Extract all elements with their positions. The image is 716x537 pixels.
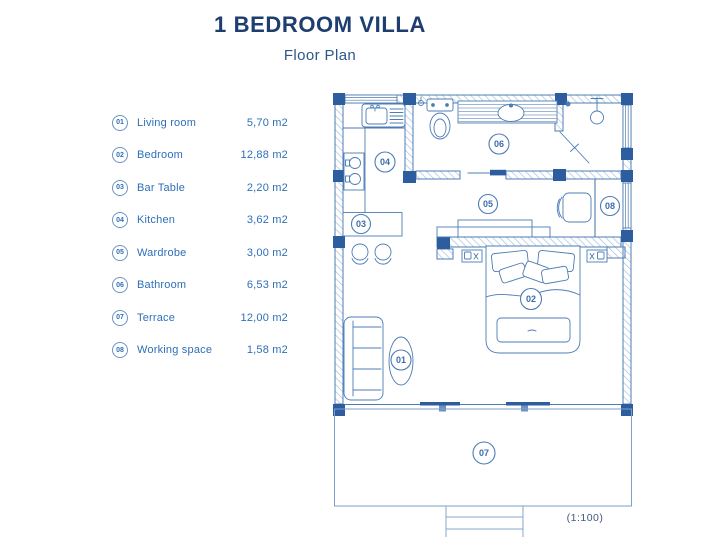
window-right-upper: [623, 105, 631, 148]
svg-text:08: 08: [605, 201, 615, 211]
svg-text:05: 05: [483, 199, 493, 209]
toilet-icon: [419, 97, 454, 139]
room-label-bedroom: 02: [521, 289, 542, 310]
svg-text:02: 02: [526, 294, 536, 304]
wardrobe: [437, 220, 550, 237]
svg-text:01: 01: [396, 355, 406, 365]
svg-text:03: 03: [356, 219, 366, 229]
stove-icon: [344, 153, 364, 190]
bathroom-sliding-door: [468, 170, 506, 176]
floor-plan-drawing: 01 02 03 04 05 06: [0, 0, 716, 537]
kitchen: [343, 104, 405, 264]
steps-icon: [446, 506, 523, 537]
room-label-working: 08: [601, 197, 620, 216]
room-label-bathroom: 06: [489, 134, 509, 154]
nightstand-icon: [462, 250, 482, 262]
room-label-bar: 03: [352, 215, 371, 234]
vanity-sink-icon: [458, 101, 557, 123]
room-label-terrace: 07: [473, 442, 495, 464]
nightstand-icon: [587, 250, 607, 262]
scale-note: (1:100): [567, 512, 604, 524]
wardrobe-unit: [458, 220, 532, 237]
room-label-kitchen: 04: [375, 152, 395, 172]
window-top: [345, 95, 397, 103]
kitchen-sink-icon: [362, 104, 405, 127]
wardrobe-unit: [437, 227, 550, 237]
working-space: [557, 179, 595, 237]
svg-text:06: 06: [494, 139, 504, 149]
room-label-wardrobe: 05: [479, 195, 498, 214]
bar-stool-icon: [352, 244, 391, 264]
sofa-icon: [344, 317, 383, 400]
svg-text:07: 07: [479, 448, 489, 458]
desk-chair-icon: [557, 193, 591, 222]
shower-icon: [560, 97, 604, 163]
sliding-glass-doors: [345, 402, 621, 412]
room-label-living: 01: [391, 350, 411, 370]
window-right-lower: [623, 183, 631, 228]
bathroom: [419, 97, 604, 163]
svg-text:04: 04: [380, 157, 390, 167]
floor-plan-page: 1 BEDROOM VILLA Floor Plan 01 Living roo…: [0, 0, 716, 537]
